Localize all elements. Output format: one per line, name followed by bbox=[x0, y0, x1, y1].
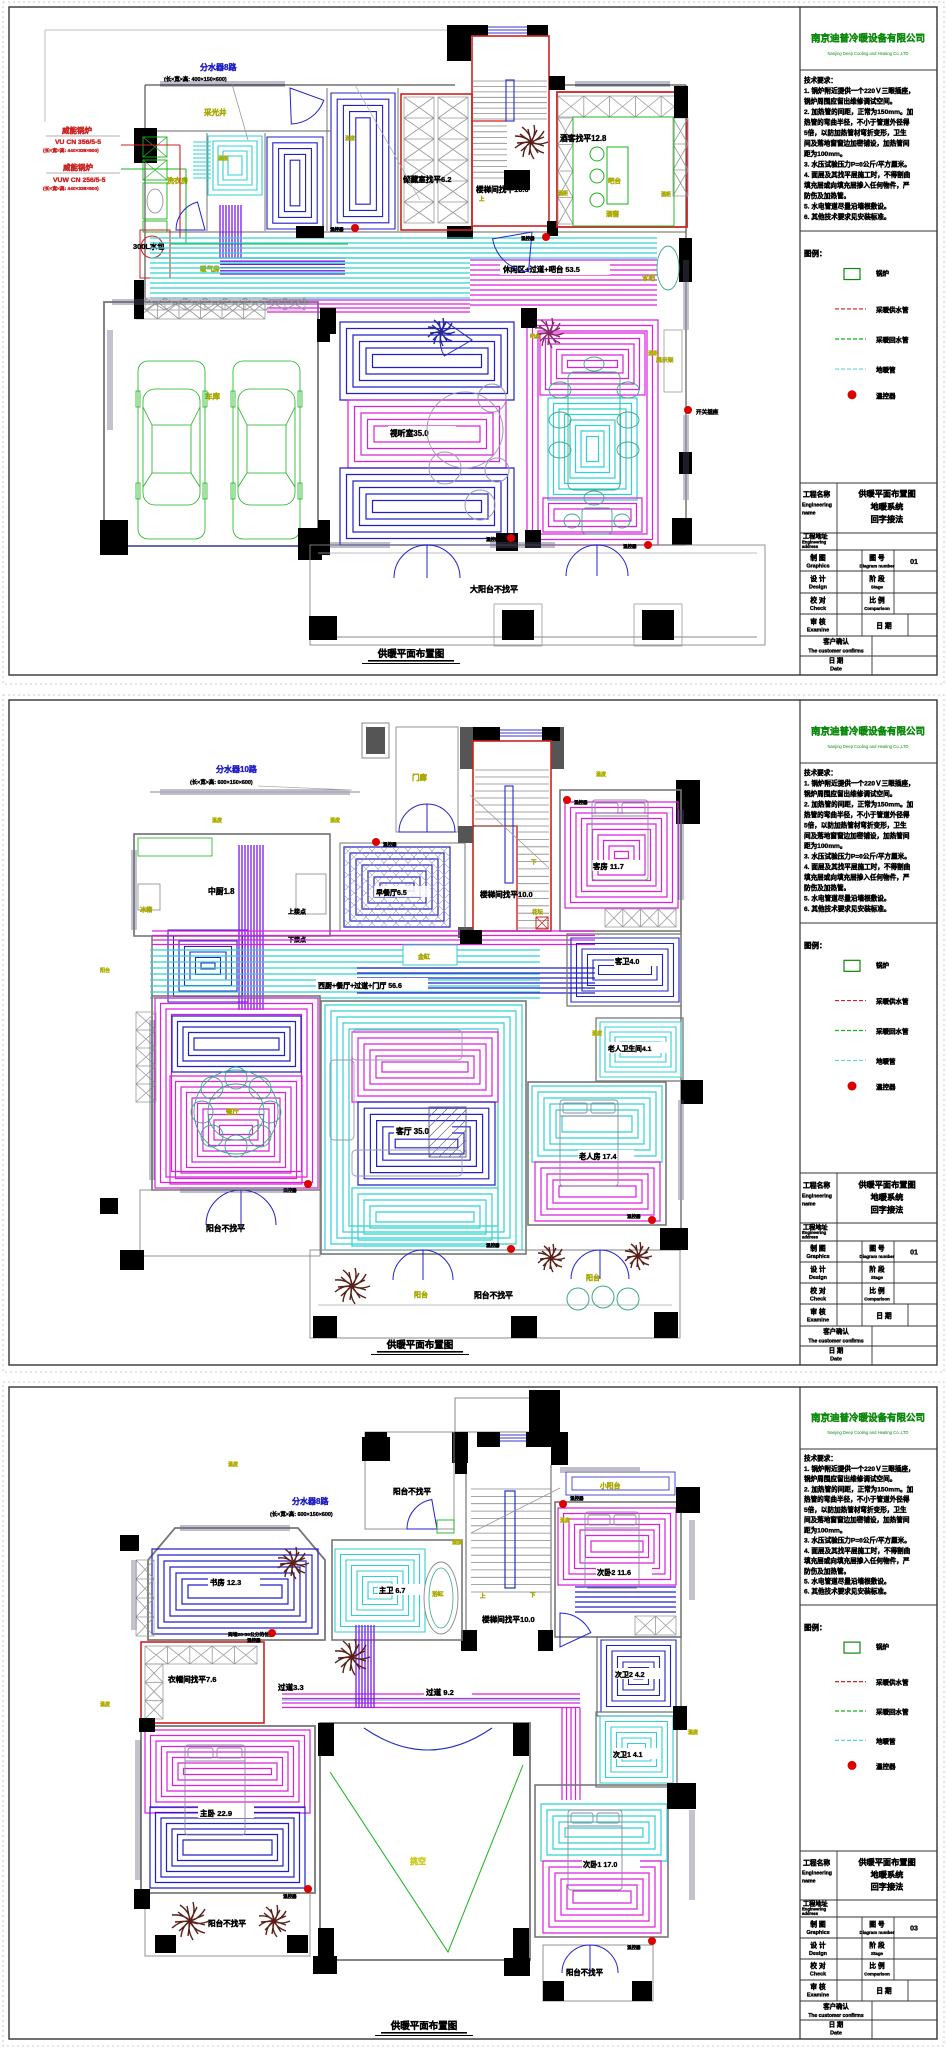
svg-text:金缸: 金缸 bbox=[417, 953, 430, 961]
svg-text:书房 12.3: 书房 12.3 bbox=[210, 1578, 241, 1587]
svg-text:间及落地窗窗边加密铺设，加热管间: 间及落地窗窗边加密铺设，加热管间 bbox=[804, 138, 910, 147]
svg-text:温控器: 温控器 bbox=[486, 536, 500, 543]
svg-text:address: address bbox=[802, 1911, 819, 1916]
svg-text:阶 段: 阶 段 bbox=[869, 574, 885, 583]
svg-text:阳台: 阳台 bbox=[586, 1273, 600, 1282]
svg-text:图例：: 图例： bbox=[804, 940, 827, 950]
svg-text:图 号: 图 号 bbox=[869, 553, 885, 562]
svg-text:Diagram number: Diagram number bbox=[860, 1254, 895, 1259]
svg-text:采暖回水管: 采暖回水管 bbox=[876, 335, 909, 344]
svg-text:温度: 温度 bbox=[596, 771, 607, 778]
svg-text:4. 面层及其找平层施工时，不得割曲: 4. 面层及其找平层施工时，不得割曲 bbox=[804, 170, 911, 179]
svg-text:供暖平面布置图: 供暖平面布置图 bbox=[857, 1179, 915, 1189]
svg-text:湿度: 湿度 bbox=[452, 1539, 463, 1546]
svg-text:阶 段: 阶 段 bbox=[869, 1940, 885, 1949]
svg-text:(长×宽×高: 600×150×600): (长×宽×高: 600×150×600) bbox=[270, 1510, 333, 1518]
svg-text:酒柜: 酒柜 bbox=[558, 190, 568, 197]
svg-text:温控器: 温控器 bbox=[876, 1082, 896, 1091]
svg-text:03: 03 bbox=[910, 1926, 918, 1933]
svg-text:采暖供水管: 采暖供水管 bbox=[876, 1678, 909, 1687]
svg-text:温度: 温度 bbox=[560, 1517, 571, 1524]
svg-text:老人卫生间4.1: 老人卫生间4.1 bbox=[607, 1044, 652, 1053]
svg-text:填充层或向填充层掺入任何物件，严: 填充层或向填充层掺入任何物件，严 bbox=[804, 1556, 910, 1565]
svg-text:校 对: 校 对 bbox=[810, 1961, 826, 1970]
svg-text:间及落地窗窗边加密铺设，加热管间: 间及落地窗窗边加密铺设，加热管间 bbox=[804, 1515, 910, 1524]
svg-text:Design: Design bbox=[809, 1951, 827, 1957]
svg-text:客户确认: 客户确认 bbox=[822, 637, 849, 646]
svg-text:次卧1 17.0: 次卧1 17.0 bbox=[583, 1860, 617, 1869]
svg-text:阳台不找平: 阳台不找平 bbox=[208, 1918, 246, 1928]
svg-text:温度: 温度 bbox=[212, 817, 223, 824]
svg-text:填充层或向填充层掺入任何物件，严: 填充层或向填充层掺入任何物件，严 bbox=[804, 180, 910, 189]
svg-text:1. 锅炉附近提供一个220Ｖ三眼插座，: 1. 锅炉附近提供一个220Ｖ三眼插座， bbox=[804, 779, 915, 788]
svg-text:Examine: Examine bbox=[807, 627, 829, 633]
svg-text:温控器: 温控器 bbox=[623, 543, 637, 550]
svg-text:The customer confirms: The customer confirms bbox=[808, 2013, 864, 2019]
svg-text:Diagram number: Diagram number bbox=[860, 1930, 895, 1935]
svg-text:供暖平面布置图: 供暖平面布置图 bbox=[377, 648, 445, 660]
svg-text:Date: Date bbox=[830, 2030, 842, 2036]
svg-text:上接点: 上接点 bbox=[288, 908, 306, 916]
svg-text:防伤及加热管。: 防伤及加热管。 bbox=[804, 1566, 850, 1575]
svg-text:楼梯间找平10.0: 楼梯间找平10.0 bbox=[480, 889, 533, 899]
svg-text:供暖平面布置图: 供暖平面布置图 bbox=[857, 1857, 915, 1867]
svg-text:南京迪普冷暖设备有限公司: 南京迪普冷暖设备有限公司 bbox=[811, 726, 925, 738]
svg-text:地暖系统: 地暖系统 bbox=[871, 1192, 905, 1202]
svg-text:2. 加热管的间距，正常为150mm。加: 2. 加热管的间距，正常为150mm。加 bbox=[804, 1484, 914, 1493]
svg-text:采暖供水管: 采暖供水管 bbox=[876, 305, 909, 314]
svg-text:地暖系统: 地暖系统 bbox=[871, 1869, 905, 1879]
svg-text:工程名称: 工程名称 bbox=[803, 1180, 830, 1189]
svg-text:工程名称: 工程名称 bbox=[803, 490, 830, 499]
svg-text:Check: Check bbox=[810, 1296, 826, 1302]
svg-text:次卧2 11.6: 次卧2 11.6 bbox=[597, 1568, 631, 1577]
svg-text:温度: 温度 bbox=[228, 1461, 239, 1468]
svg-text:地暖管: 地暖管 bbox=[876, 1056, 896, 1065]
svg-text:锅炉周围应留出维修调试空间。: 锅炉周围应留出维修调试空间。 bbox=[804, 789, 896, 798]
svg-text:设 计: 设 计 bbox=[810, 1265, 826, 1274]
svg-text:校 对: 校 对 bbox=[810, 1286, 826, 1295]
svg-text:湿度: 湿度 bbox=[592, 1030, 603, 1037]
svg-text:开关插座: 开关插座 bbox=[696, 408, 719, 416]
svg-text:The customer confirms: The customer confirms bbox=[808, 1338, 864, 1344]
svg-text:Comparison: Comparison bbox=[864, 606, 890, 611]
svg-text:图 号: 图 号 bbox=[869, 1920, 885, 1929]
svg-text:南京迪普冷暖设备有限公司: 南京迪普冷暖设备有限公司 bbox=[811, 33, 925, 45]
svg-text:下: 下 bbox=[530, 1592, 536, 1599]
svg-text:客厅 35.0: 客厅 35.0 bbox=[396, 1126, 430, 1136]
svg-text:制 图: 制 图 bbox=[810, 1243, 826, 1252]
svg-text:早餐厅6.5: 早餐厅6.5 bbox=[376, 888, 407, 897]
svg-text:过道 9.2: 过道 9.2 bbox=[426, 1687, 454, 1697]
svg-text:address: address bbox=[802, 1235, 819, 1240]
svg-text:供暖平面布置图: 供暖平面布置图 bbox=[386, 1339, 454, 1351]
svg-text:3. 水压试验压力P=6公斤/平方厘米。: 3. 水压试验压力P=6公斤/平方厘米。 bbox=[804, 159, 911, 168]
svg-text:锅炉: 锅炉 bbox=[876, 1642, 890, 1651]
svg-text:Graphics: Graphics bbox=[806, 1930, 829, 1936]
svg-text:老人房 17.4: 老人房 17.4 bbox=[578, 1152, 617, 1161]
svg-text:设 计: 设 计 bbox=[810, 1940, 826, 1949]
svg-text:湿度: 湿度 bbox=[330, 817, 341, 824]
svg-text:阳台不找平: 阳台不找平 bbox=[393, 1486, 431, 1496]
svg-text:湿度: 湿度 bbox=[688, 1729, 699, 1736]
svg-text:Design: Design bbox=[809, 1275, 827, 1281]
svg-text:温控器: 温控器 bbox=[876, 391, 896, 400]
svg-text:主卫 6.7: 主卫 6.7 bbox=[379, 1586, 405, 1595]
svg-text:比 例: 比 例 bbox=[869, 1961, 885, 1970]
svg-text:技术要求：: 技术要求： bbox=[804, 75, 837, 84]
svg-text:过道3.3: 过道3.3 bbox=[278, 1682, 304, 1692]
svg-text:客卫4.0: 客卫4.0 bbox=[614, 957, 639, 966]
svg-text:01: 01 bbox=[910, 1249, 918, 1256]
svg-text:大阳台不找平: 大阳台不找平 bbox=[470, 584, 518, 594]
svg-text:回字接法: 回字接法 bbox=[871, 1205, 904, 1215]
svg-text:水吧: 水吧 bbox=[642, 273, 656, 282]
svg-text:防伤及加热管。: 防伤及加热管。 bbox=[804, 883, 850, 892]
svg-text:Stage: Stage bbox=[871, 585, 884, 590]
svg-text:制 图: 制 图 bbox=[810, 1920, 826, 1929]
svg-text:日 期: 日 期 bbox=[829, 1345, 844, 1354]
svg-text:VUW CN 256/5-5: VUW CN 256/5-5 bbox=[53, 177, 106, 184]
svg-text:温度: 温度 bbox=[100, 1701, 111, 1708]
svg-text:供暖平面布置图: 供暖平面布置图 bbox=[857, 489, 915, 499]
svg-text:间及落地窗窗边加密铺设，加热管间: 间及落地窗窗边加密铺设，加热管间 bbox=[804, 831, 910, 840]
svg-text:吧台: 吧台 bbox=[530, 333, 540, 340]
svg-text:衣帽间找平7.6: 衣帽间找平7.6 bbox=[168, 1674, 217, 1684]
svg-text:1. 锅炉附近提供一个220Ｖ三眼插座，: 1. 锅炉附近提供一个220Ｖ三眼插座， bbox=[804, 1464, 915, 1473]
svg-text:锅炉周围应留出维修调试空间。: 锅炉周围应留出维修调试空间。 bbox=[804, 96, 896, 105]
svg-text:冰箱: 冰箱 bbox=[140, 906, 152, 914]
svg-text:阳台不找平: 阳台不找平 bbox=[474, 1290, 513, 1300]
svg-text:VU CN 356/5-5: VU CN 356/5-5 bbox=[55, 139, 101, 146]
svg-text:客房 11.7: 客房 11.7 bbox=[592, 862, 624, 871]
svg-text:Engineering: Engineering bbox=[802, 1193, 832, 1199]
svg-text:图例：: 图例： bbox=[804, 248, 827, 258]
svg-text:5. 水电管道尽量沿墙根敷设。: 5. 水电管道尽量沿墙根敷设。 bbox=[804, 1577, 890, 1586]
svg-text:采暖回水管: 采暖回水管 bbox=[876, 1707, 909, 1716]
svg-text:6. 其他技术要求见安装标准。: 6. 其他技术要求见安装标准。 bbox=[804, 212, 890, 221]
svg-text:Nanjing Deep Cooling and Heati: Nanjing Deep Cooling and Heating Co.,LTD bbox=[828, 744, 909, 749]
svg-text:Date: Date bbox=[830, 666, 842, 672]
svg-text:采暖供水管: 采暖供水管 bbox=[876, 997, 909, 1006]
svg-text:日 期: 日 期 bbox=[876, 1311, 892, 1320]
svg-text:威能锅炉: 威能锅炉 bbox=[62, 125, 92, 135]
svg-text:地暖管: 地暖管 bbox=[876, 1736, 896, 1745]
svg-text:2. 加热管的间距，正常为150mm。加: 2. 加热管的间距，正常为150mm。加 bbox=[804, 799, 914, 808]
svg-text:回字接法: 回字接法 bbox=[871, 1882, 904, 1892]
svg-text:分水器10路: 分水器10路 bbox=[216, 764, 258, 774]
svg-text:温度: 温度 bbox=[345, 135, 356, 142]
svg-text:比 例: 比 例 bbox=[869, 596, 885, 605]
svg-text:技术要求：: 技术要求： bbox=[804, 768, 837, 777]
svg-text:锅炉: 锅炉 bbox=[876, 960, 890, 969]
svg-text:楼梯间找平10.0: 楼梯间找平10.0 bbox=[482, 1614, 535, 1624]
svg-text:5. 水电管道尽量沿墙根敷设。: 5. 水电管道尽量沿墙根敷设。 bbox=[804, 893, 890, 902]
svg-text:酒客找平12.8: 酒客找平12.8 bbox=[560, 133, 607, 143]
svg-text:温控器: 温控器 bbox=[247, 1637, 261, 1644]
svg-text:温控器: 温控器 bbox=[876, 1761, 896, 1770]
svg-text:Graphics: Graphics bbox=[806, 1254, 829, 1260]
svg-text:温控器: 温控器 bbox=[330, 226, 344, 233]
svg-text:离墙20-30公分的位置: 离墙20-30公分的位置 bbox=[228, 1631, 274, 1638]
svg-text:5倍，以防加热管材弯折变形，卫生: 5倍，以防加热管材弯折变形，卫生 bbox=[804, 820, 907, 829]
svg-text:5倍，以防加热管材弯折变形，卫生: 5倍，以防加热管材弯折变形，卫生 bbox=[804, 128, 907, 137]
svg-text:比 例: 比 例 bbox=[869, 1286, 885, 1295]
svg-text:门廊: 门廊 bbox=[412, 772, 427, 782]
svg-text:浴缸: 浴缸 bbox=[432, 1590, 444, 1598]
svg-text:Nanjing Deep Cooling and Heati: Nanjing Deep Cooling and Heating Co.,LTD bbox=[828, 51, 909, 56]
svg-text:温控器: 温控器 bbox=[570, 1495, 584, 1502]
svg-text:热管的弯曲半径，不小于管道外径得: 热管的弯曲半径，不小于管道外径得 bbox=[804, 810, 910, 819]
svg-text:3. 水压试验压力P=6公斤/平方厘米。: 3. 水压试验压力P=6公斤/平方厘米。 bbox=[804, 852, 911, 861]
svg-text:6. 其他技术要求见安装标准。: 6. 其他技术要求见安装标准。 bbox=[804, 1587, 890, 1596]
svg-text:温控器: 温控器 bbox=[627, 1213, 641, 1220]
svg-text:地暖系统: 地暖系统 bbox=[871, 501, 905, 511]
svg-text:下: 下 bbox=[531, 859, 537, 866]
svg-text:name: name bbox=[802, 511, 816, 517]
svg-text:分水器8路: 分水器8路 bbox=[200, 62, 237, 72]
svg-text:图例：: 图例： bbox=[804, 1622, 827, 1632]
svg-text:客户确认: 客户确认 bbox=[822, 2001, 849, 2010]
svg-text:Check: Check bbox=[810, 1972, 826, 1978]
svg-text:小阳台: 小阳台 bbox=[599, 1481, 621, 1490]
svg-text:温控器: 温控器 bbox=[521, 235, 535, 242]
svg-text:审 核: 审 核 bbox=[810, 1982, 826, 1991]
svg-text:4. 面层及其找平层施工时，不得割曲: 4. 面层及其找平层施工时，不得割曲 bbox=[804, 1546, 911, 1555]
svg-text:工程名称: 工程名称 bbox=[803, 1858, 830, 1867]
svg-text:挑空: 挑空 bbox=[410, 1856, 426, 1866]
svg-text:审 核: 审 核 bbox=[810, 1307, 826, 1316]
svg-text:name: name bbox=[802, 1879, 816, 1885]
svg-text:温控器: 温控器 bbox=[627, 1944, 641, 1951]
svg-text:酒窖: 酒窖 bbox=[606, 209, 620, 218]
svg-text:address: address bbox=[802, 544, 819, 549]
svg-text:花坛: 花坛 bbox=[532, 908, 544, 916]
svg-text:日 期: 日 期 bbox=[876, 1986, 892, 1995]
svg-text:距为100mm。: 距为100mm。 bbox=[804, 841, 847, 850]
svg-text:距为100mm。: 距为100mm。 bbox=[804, 1525, 847, 1534]
svg-text:距为100mm。: 距为100mm。 bbox=[804, 149, 847, 158]
svg-text:4. 面层及其找平层施工时，不得割曲: 4. 面层及其找平层施工时，不得割曲 bbox=[804, 862, 911, 871]
svg-text:餐厅: 餐厅 bbox=[225, 1107, 240, 1116]
svg-text:休闲区+过道+吧台 53.5: 休闲区+过道+吧台 53.5 bbox=[502, 265, 580, 274]
svg-text:客户确认: 客户确认 bbox=[822, 1327, 849, 1336]
svg-text:阳台不找平: 阳台不找平 bbox=[566, 1968, 604, 1977]
svg-text:温控器: 温控器 bbox=[283, 1893, 297, 1900]
svg-text:01: 01 bbox=[910, 559, 918, 566]
svg-text:Comparison: Comparison bbox=[864, 1296, 890, 1301]
svg-text:(长×宽×高: 440×338×800): (长×宽×高: 440×338×800) bbox=[43, 185, 99, 192]
svg-text:南京迪普冷暖设备有限公司: 南京迪普冷暖设备有限公司 bbox=[811, 1412, 925, 1424]
svg-text:酒柜: 酒柜 bbox=[648, 350, 658, 357]
svg-text:地暖管: 地暖管 bbox=[876, 365, 896, 374]
svg-text:采暖回水管: 采暖回水管 bbox=[876, 1027, 909, 1036]
svg-text:温度: 温度 bbox=[218, 155, 229, 162]
svg-text:Comparison: Comparison bbox=[864, 1972, 890, 1977]
svg-text:锅炉周围应留出维修调试空间。: 锅炉周围应留出维修调试空间。 bbox=[804, 1474, 896, 1483]
svg-text:Engineering: Engineering bbox=[802, 503, 832, 509]
svg-text:分水器8路: 分水器8路 bbox=[292, 1496, 329, 1506]
svg-text:回字接法: 回字接法 bbox=[871, 514, 904, 524]
svg-text:Design: Design bbox=[809, 585, 827, 591]
svg-text:主卧 22.9: 主卧 22.9 bbox=[200, 1808, 232, 1818]
svg-text:展示架: 展示架 bbox=[656, 356, 674, 364]
svg-text:Engineering: Engineering bbox=[802, 1871, 832, 1877]
svg-text:威能锅炉: 威能锅炉 bbox=[63, 162, 93, 172]
svg-text:温控器: 温控器 bbox=[574, 799, 588, 806]
svg-text:制 图: 制 图 bbox=[810, 553, 826, 562]
svg-text:吧台: 吧台 bbox=[608, 176, 622, 185]
svg-text:日 期: 日 期 bbox=[829, 655, 844, 664]
svg-text:热管的弯曲半径，不小于管道外径得: 热管的弯曲半径，不小于管道外径得 bbox=[804, 117, 910, 126]
svg-text:酒柜: 酒柜 bbox=[661, 191, 671, 198]
svg-text:Graphics: Graphics bbox=[806, 563, 829, 569]
svg-text:日 期: 日 期 bbox=[876, 621, 892, 630]
svg-text:阶 段: 阶 段 bbox=[869, 1265, 885, 1274]
svg-text:视听室35.0: 视听室35.0 bbox=[390, 428, 429, 438]
svg-text:5倍，以防加热管材弯折变形，卫生: 5倍，以防加热管材弯折变形，卫生 bbox=[804, 1505, 907, 1514]
svg-text:3. 水压试验压力P=6公斤/平方厘米。: 3. 水压试验压力P=6公斤/平方厘米。 bbox=[804, 1536, 911, 1545]
svg-text:Examine: Examine bbox=[807, 1318, 829, 1324]
svg-text:防伤及加热管。: 防伤及加热管。 bbox=[804, 191, 850, 200]
svg-text:设 计: 设 计 bbox=[810, 574, 826, 583]
svg-text:Date: Date bbox=[830, 1356, 842, 1362]
svg-text:Check: Check bbox=[810, 606, 826, 612]
svg-text:阳台不找平: 阳台不找平 bbox=[206, 1223, 245, 1233]
svg-text:Nanjing Deep Cooling and Heati: Nanjing Deep Cooling and Heating Co.,LTD bbox=[828, 1430, 909, 1435]
svg-text:西厨+餐厅+过道+门厅 56.6: 西厨+餐厅+过道+门厅 56.6 bbox=[318, 981, 402, 990]
svg-text:阳台: 阳台 bbox=[100, 967, 110, 974]
svg-text:Stage: Stage bbox=[871, 1951, 884, 1956]
svg-text:日 期: 日 期 bbox=[829, 2020, 844, 2029]
svg-text:5. 水电管道尽量沿墙根敷设。: 5. 水电管道尽量沿墙根敷设。 bbox=[804, 201, 890, 210]
svg-text:洗衣房: 洗衣房 bbox=[167, 176, 188, 185]
svg-text:Stage: Stage bbox=[871, 1275, 884, 1280]
svg-text:温控器: 温控器 bbox=[383, 841, 397, 848]
svg-text:次卫1 4.1: 次卫1 4.1 bbox=[613, 1750, 643, 1759]
svg-text:上: 上 bbox=[479, 195, 485, 203]
svg-text:name: name bbox=[802, 1201, 816, 1207]
svg-text:采光井: 采光井 bbox=[203, 107, 227, 117]
svg-text:阳台: 阳台 bbox=[414, 1290, 428, 1299]
svg-text:Diagram number: Diagram number bbox=[860, 563, 895, 568]
svg-text:热管的弯曲半径，不小于管道外径得: 热管的弯曲半径，不小于管道外径得 bbox=[804, 1495, 910, 1504]
svg-text:6. 其他技术要求见安装标准。: 6. 其他技术要求见安装标准。 bbox=[804, 904, 890, 913]
svg-text:(长×宽×高: 440×338×800): (长×宽×高: 440×338×800) bbox=[43, 147, 99, 154]
svg-text:The customer confirms: The customer confirms bbox=[808, 648, 864, 654]
svg-text:次卫2 4.2: 次卫2 4.2 bbox=[615, 1670, 645, 1679]
svg-text:上: 上 bbox=[480, 1592, 486, 1600]
svg-text:供暖平面布置图: 供暖平面布置图 bbox=[390, 2020, 458, 2032]
svg-text:Examine: Examine bbox=[807, 1993, 829, 1999]
svg-text:填充层或向填充层掺入任何物件，严: 填充层或向填充层掺入任何物件，严 bbox=[804, 873, 910, 882]
svg-text:校 对: 校 对 bbox=[810, 596, 826, 605]
svg-text:1. 锅炉附近提供一个220Ｖ三眼插座，: 1. 锅炉附近提供一个220Ｖ三眼插座， bbox=[804, 86, 915, 95]
svg-text:技术要求：: 技术要求： bbox=[804, 1454, 837, 1463]
svg-text:中厨1.8: 中厨1.8 bbox=[208, 886, 235, 896]
svg-text:锅炉: 锅炉 bbox=[876, 269, 890, 278]
svg-text:温控器: 温控器 bbox=[486, 1242, 500, 1249]
svg-text:(长×宽×高: 600×150×600): (长×宽×高: 600×150×600) bbox=[190, 778, 253, 786]
svg-text:审 核: 审 核 bbox=[810, 617, 826, 626]
svg-text:2. 加热管的间距，正常为150mm。加: 2. 加热管的间距，正常为150mm。加 bbox=[804, 107, 914, 116]
svg-text:图 号: 图 号 bbox=[869, 1243, 885, 1252]
